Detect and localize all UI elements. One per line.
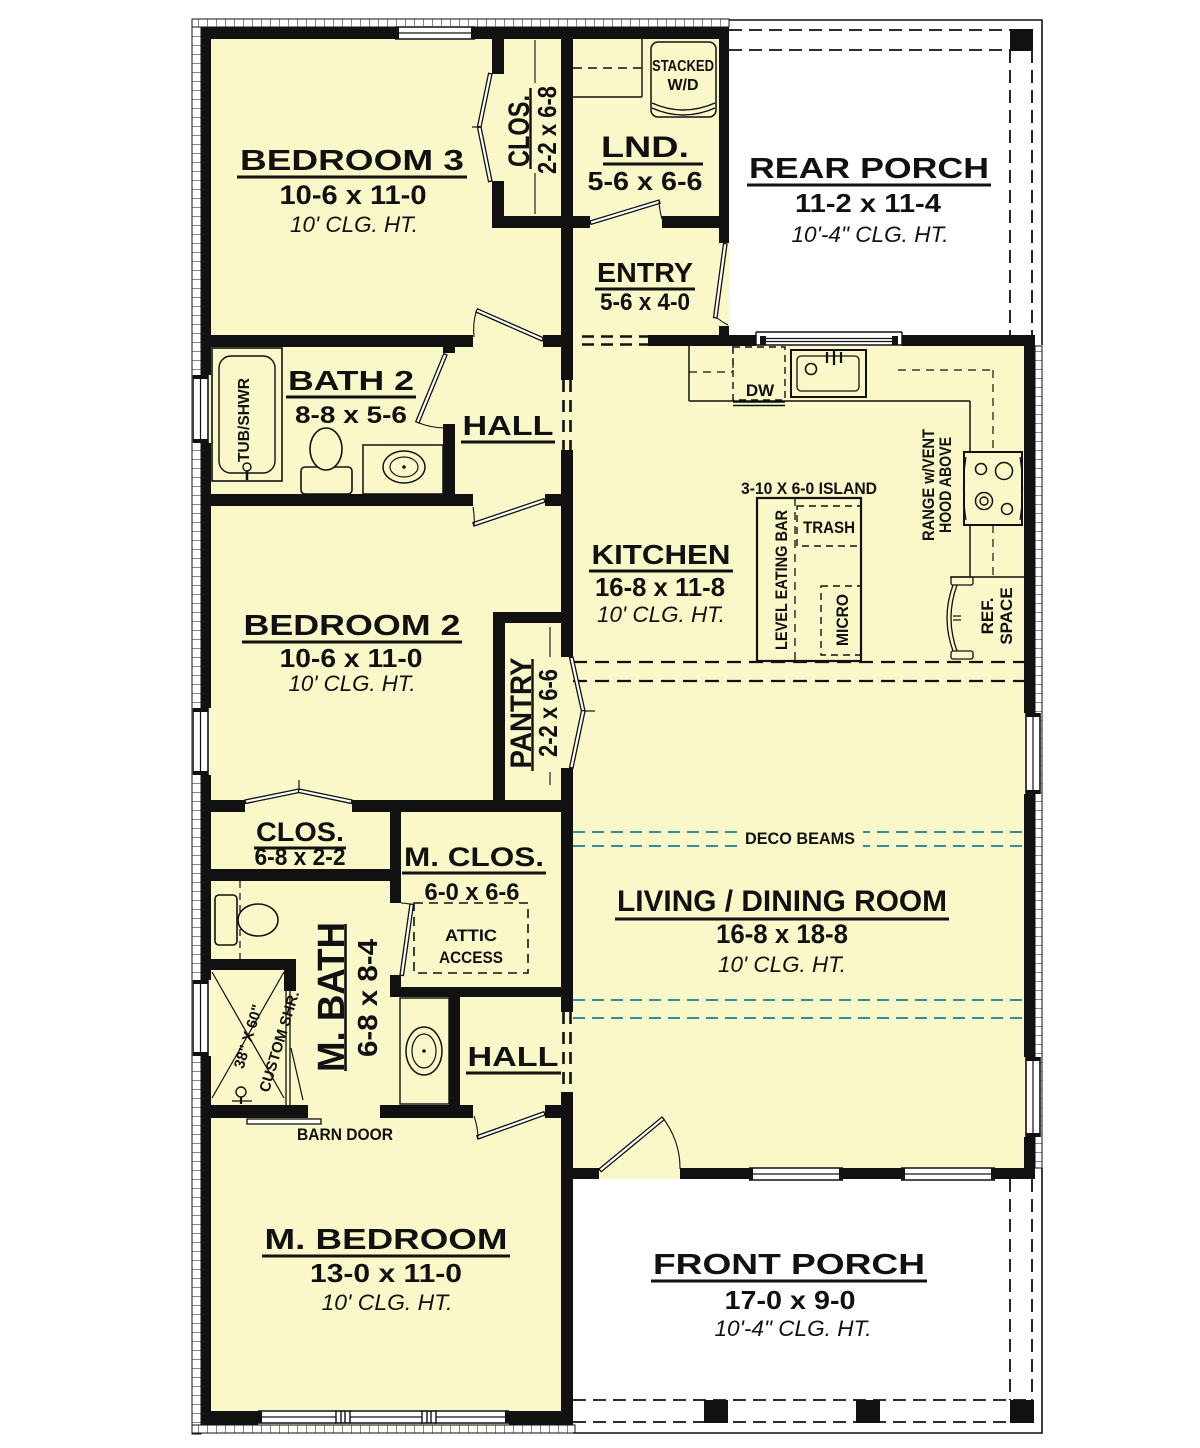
svg-text:HOOD ABOVE: HOOD ABOVE	[936, 437, 955, 533]
svg-text:13-0 x 11-0: 13-0 x 11-0	[310, 1258, 462, 1288]
svg-text:ATTIC: ATTIC	[445, 926, 497, 945]
svg-text:W/D: W/D	[667, 77, 698, 94]
svg-text:LIVING / DINING ROOM: LIVING / DINING ROOM	[617, 885, 947, 918]
svg-text:16-8 x 11-8: 16-8 x 11-8	[595, 572, 725, 602]
svg-text:10'-4" CLG. HT.: 10'-4" CLG. HT.	[792, 222, 949, 247]
svg-text:M. BEDROOM: M. BEDROOM	[265, 1224, 508, 1256]
svg-text:ENTRY: ENTRY	[597, 257, 693, 288]
svg-text:5-6 x 4-0: 5-6 x 4-0	[600, 289, 690, 316]
svg-text:10'-4" CLG. HT.: 10'-4" CLG. HT.	[715, 1316, 872, 1341]
svg-text:6-0 x 6-6: 6-0 x 6-6	[425, 879, 520, 906]
svg-text:M. CLOS.: M. CLOS.	[404, 842, 544, 872]
svg-text:STACKED: STACKED	[652, 58, 714, 75]
svg-text:LEVEL EATING BAR: LEVEL EATING BAR	[772, 510, 791, 650]
svg-text:10' CLG. HT.: 10' CLG. HT.	[289, 671, 416, 696]
svg-text:BATH 2: BATH 2	[288, 365, 414, 396]
svg-text:CLOS.: CLOS.	[256, 817, 344, 847]
svg-text:BARN DOOR: BARN DOOR	[297, 1125, 393, 1144]
svg-text:KITCHEN: KITCHEN	[592, 539, 731, 570]
svg-text:TRASH: TRASH	[803, 518, 855, 537]
svg-text:6-8 x 2-2: 6-8 x 2-2	[255, 844, 346, 871]
svg-text:REAR PORCH: REAR PORCH	[749, 153, 989, 185]
svg-text:BEDROOM 2: BEDROOM 2	[244, 610, 461, 642]
svg-text:SPACE: SPACE	[997, 587, 1016, 644]
svg-text:16-8 x 18-8: 16-8 x 18-8	[716, 919, 848, 949]
svg-text:10' CLG. HT.: 10' CLG. HT.	[718, 952, 846, 977]
svg-text:ACCESS: ACCESS	[439, 948, 503, 967]
svg-text:DW: DW	[746, 381, 775, 400]
svg-text:2-2 x 6-8: 2-2 x 6-8	[532, 86, 562, 174]
svg-text:HALL: HALL	[463, 410, 554, 441]
svg-text:10' CLG. HT.: 10' CLG. HT.	[290, 212, 418, 237]
svg-text:6-8 x 8-4: 6-8 x 8-4	[352, 939, 383, 1057]
svg-text:LND.: LND.	[601, 131, 689, 164]
svg-text:2-2 x 6-6: 2-2 x 6-6	[533, 669, 563, 757]
svg-text:DECO BEAMS: DECO BEAMS	[745, 829, 855, 848]
svg-text:3-10 X 6-0 ISLAND: 3-10 X 6-0 ISLAND	[741, 479, 877, 498]
svg-text:10' CLG. HT.: 10' CLG. HT.	[322, 1290, 453, 1315]
svg-text:10-6 x 11-0: 10-6 x 11-0	[280, 643, 423, 673]
svg-text:11-2 x 11-4: 11-2 x 11-4	[795, 188, 942, 218]
svg-text:BEDROOM 3: BEDROOM 3	[240, 145, 464, 177]
svg-text:17-0 x 9-0: 17-0 x 9-0	[725, 1285, 856, 1315]
svg-text:10-6 x 11-0: 10-6 x 11-0	[280, 180, 427, 210]
svg-text:8-8 x 5-6: 8-8 x 5-6	[295, 402, 407, 429]
svg-text:10' CLG. HT.: 10' CLG. HT.	[597, 602, 725, 627]
svg-text:5-6 x 6-6: 5-6 x 6-6	[588, 166, 703, 196]
svg-text:TUB/SHWR: TUB/SHWR	[236, 378, 253, 462]
svg-text:REF.: REF.	[978, 598, 997, 635]
svg-text:MICRO: MICRO	[833, 594, 852, 646]
svg-text:HALL: HALL	[468, 1041, 559, 1072]
svg-text:FRONT PORCH: FRONT PORCH	[653, 1249, 925, 1281]
